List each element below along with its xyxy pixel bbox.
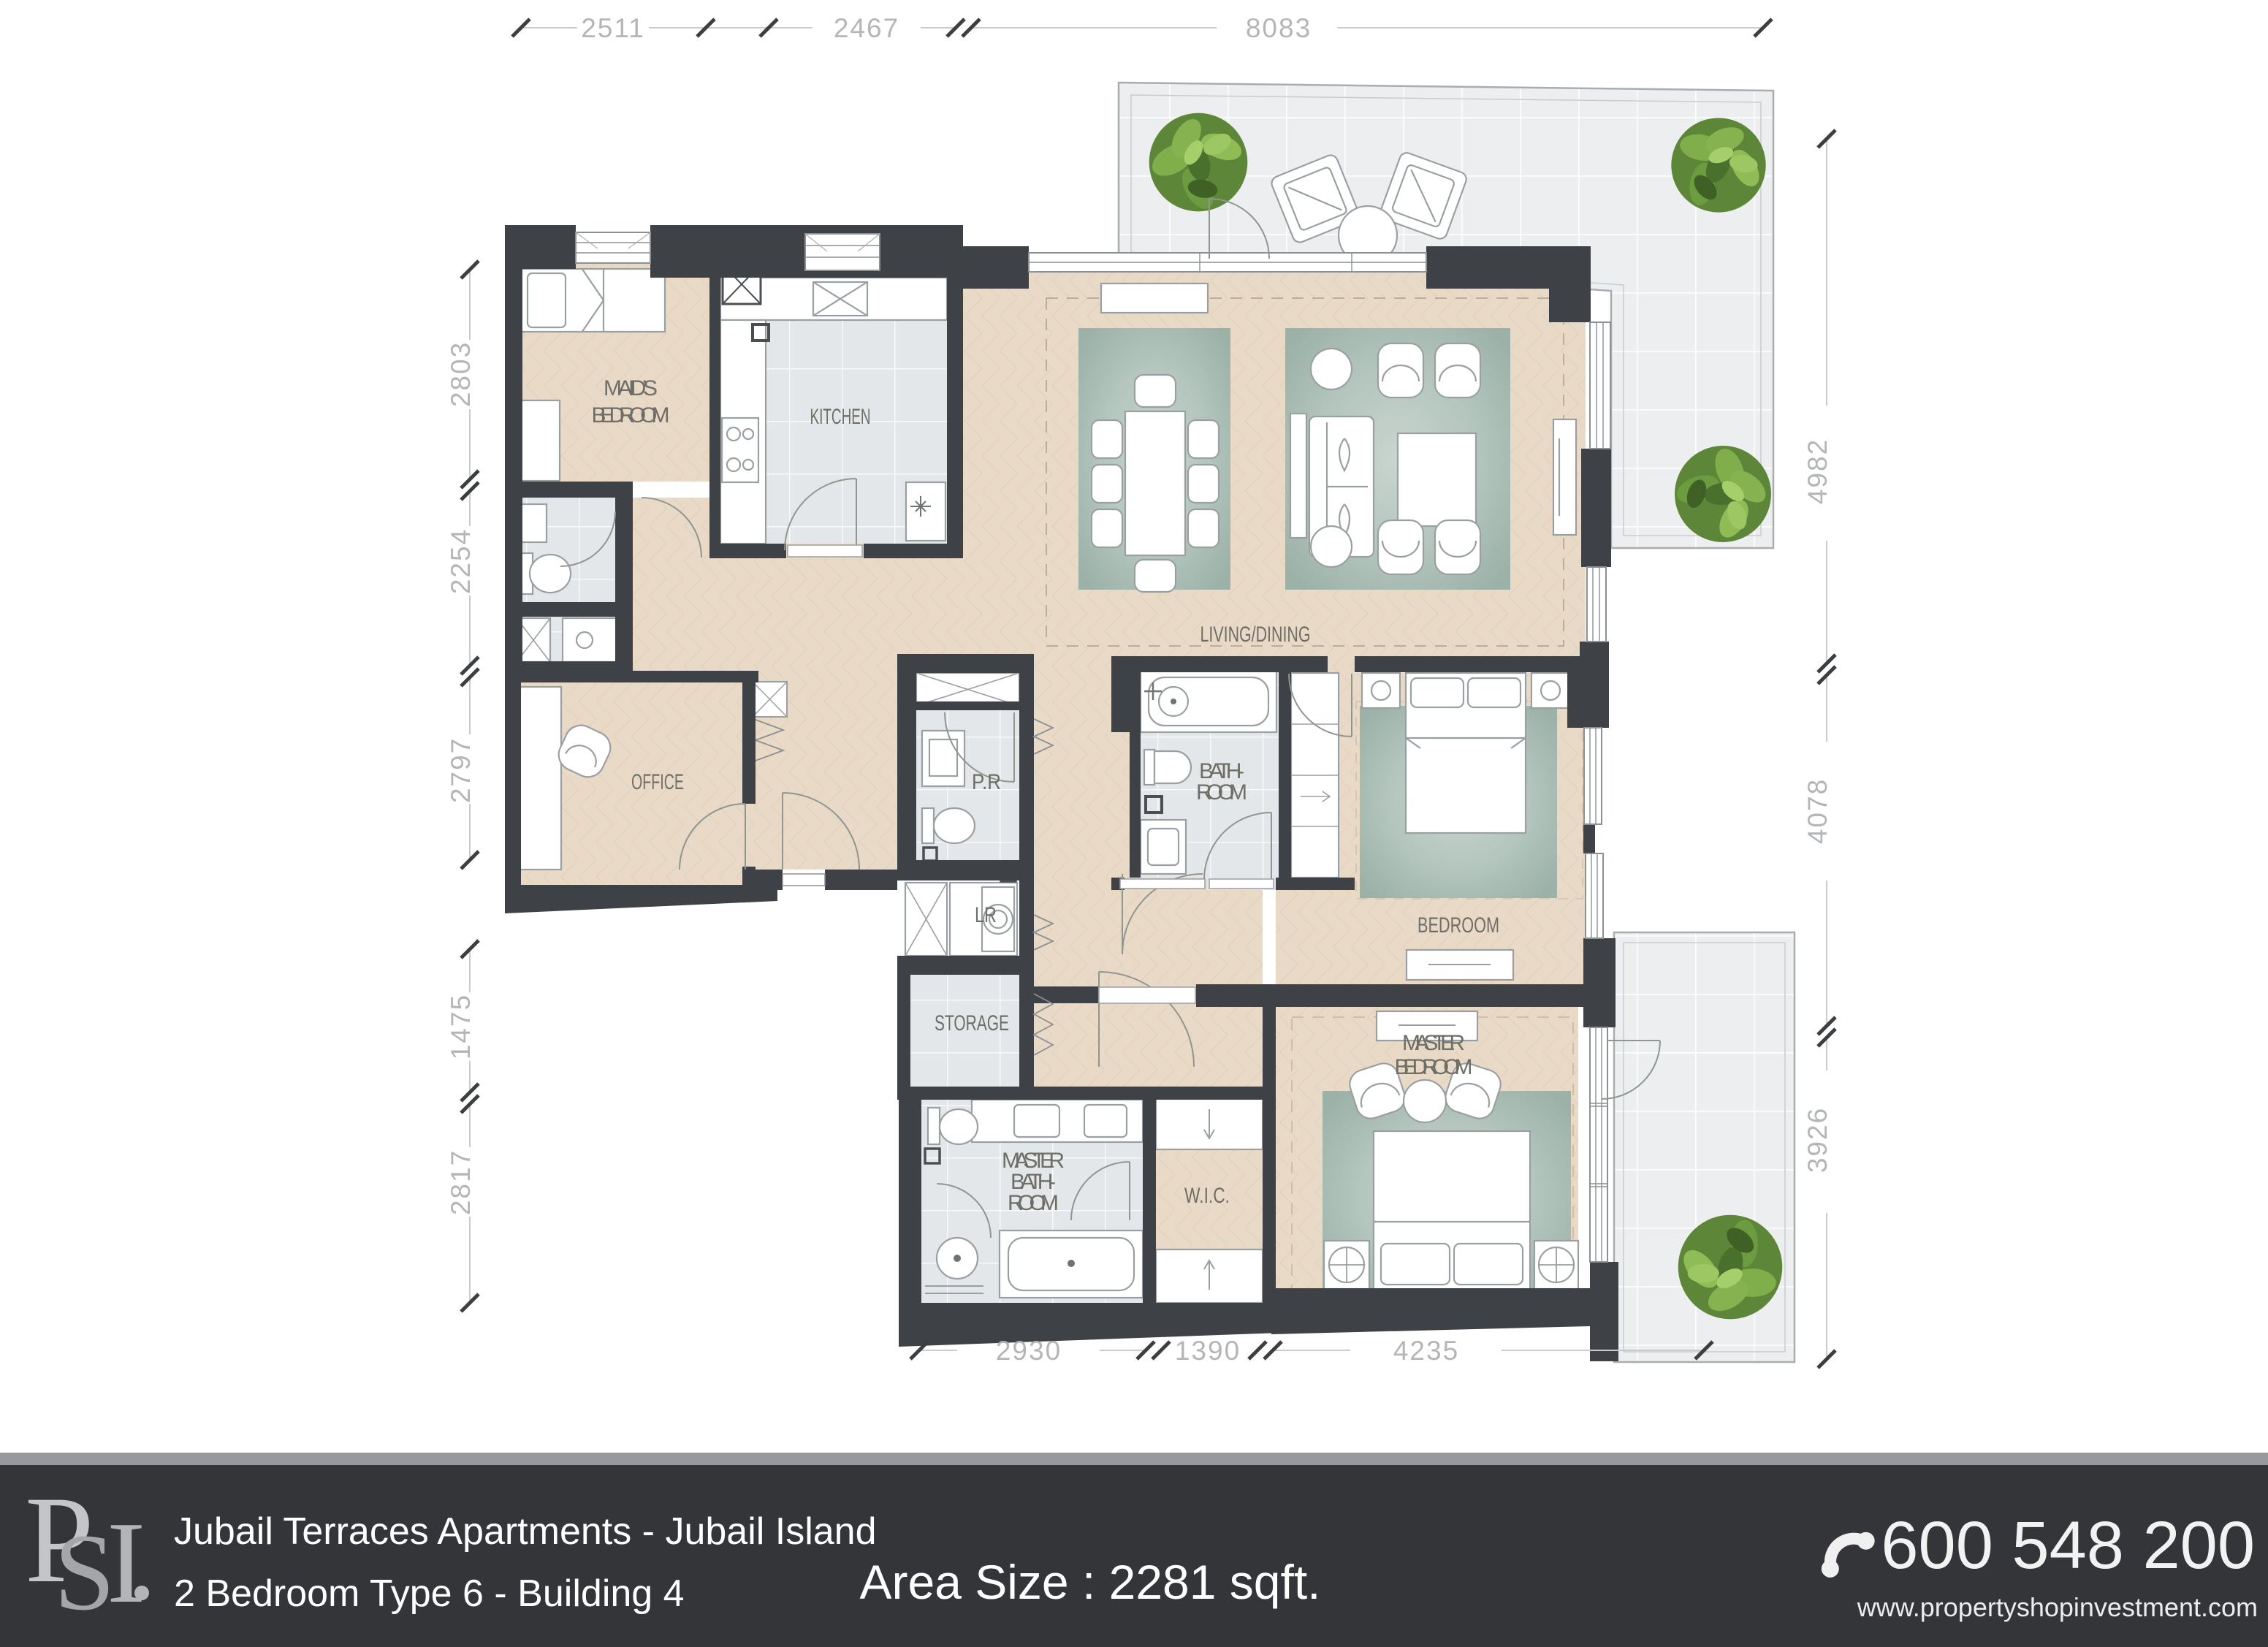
svg-text:600 548 200: 600 548 200 (1881, 1508, 2255, 1583)
svg-text:P.R: P.R (972, 770, 1001, 794)
svg-text:4982: 4982 (1803, 438, 1833, 504)
svg-text:OFFICE: OFFICE (631, 770, 684, 794)
svg-text:2254: 2254 (446, 528, 476, 594)
svg-text:MASTER: MASTER (1402, 1031, 1465, 1055)
svg-text:MAID’S: MAID’S (604, 376, 658, 400)
svg-text:W.I.C.: W.I.C. (1184, 1184, 1230, 1208)
svg-text:LR: LR (975, 903, 997, 927)
svg-text:2511: 2511 (581, 13, 645, 43)
svg-text:BEDROOM: BEDROOM (1417, 913, 1499, 937)
svg-text:2803: 2803 (446, 341, 476, 407)
svg-text:KITCHEN: KITCHEN (810, 405, 871, 429)
svg-text:2930: 2930 (996, 1336, 1062, 1366)
svg-text:8083: 8083 (1246, 13, 1312, 43)
svg-text:I: I (107, 1497, 145, 1627)
svg-text:2817: 2817 (446, 1149, 476, 1215)
svg-text:4078: 4078 (1803, 778, 1833, 844)
svg-text:1475: 1475 (446, 994, 476, 1060)
svg-text:Jubail Terraces Apartments - J: Jubail Terraces Apartments - Jubail Isla… (174, 1510, 877, 1553)
svg-text:3926: 3926 (1803, 1107, 1833, 1173)
svg-text:2 Bedroom Type 6 - Building 4: 2 Bedroom Type 6 - Building 4 (174, 1572, 685, 1615)
svg-text:STORAGE: STORAGE (935, 1011, 1009, 1035)
svg-text:4235: 4235 (1393, 1336, 1459, 1366)
svg-text:Area Size : 2281 sqft.: Area Size : 2281 sqft. (859, 1555, 1320, 1609)
svg-text:ROOM: ROOM (1008, 1191, 1059, 1215)
svg-text:1390: 1390 (1175, 1336, 1241, 1366)
svg-text:BEDROOM: BEDROOM (1395, 1055, 1473, 1079)
svg-text:www.propertyshopinvestment.com: www.propertyshopinvestment.com (1857, 1592, 2258, 1622)
svg-text:BEDROOM: BEDROOM (592, 403, 670, 427)
svg-text:2467: 2467 (834, 13, 899, 43)
svg-text:LIVING/DINING: LIVING/DINING (1200, 623, 1311, 647)
svg-text:ROOM: ROOM (1196, 780, 1247, 805)
svg-text:S: S (54, 1512, 115, 1633)
svg-text:2797: 2797 (446, 737, 476, 803)
